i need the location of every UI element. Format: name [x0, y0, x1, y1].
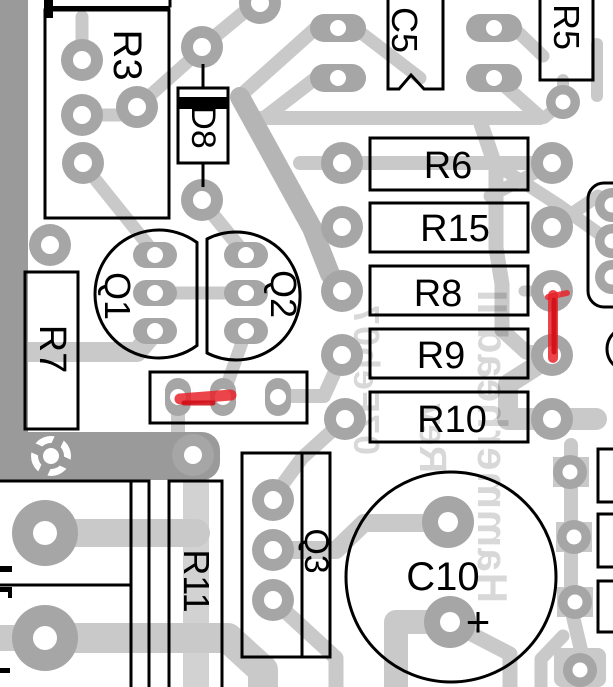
component-outline-edge-box [598, 514, 613, 567]
component-outline-edge-box [598, 449, 613, 502]
pad [224, 242, 268, 268]
pad [324, 398, 366, 440]
label-r5: R5 [546, 4, 587, 50]
label-r10: R10 [417, 399, 487, 441]
label-r6: R6 [424, 145, 473, 187]
pad [29, 224, 71, 266]
pad [133, 280, 177, 306]
pad [310, 64, 366, 92]
pcb-svg: Hammerhead II Rev 07Feb07 [0, 0, 613, 687]
pad [239, 0, 281, 24]
pad [422, 496, 474, 548]
pad [466, 64, 522, 92]
red-mark-vertical-cap [548, 293, 567, 297]
pad [265, 378, 291, 416]
label-r11: R11 [176, 549, 217, 612]
label-c10: C10 [406, 555, 479, 599]
pad [252, 579, 294, 621]
red-mark-horizontal [180, 395, 231, 399]
pad [531, 142, 573, 184]
pcb-layout-diagram: Hammerhead II Rev 07Feb07 [0, 0, 613, 687]
pad [531, 398, 573, 440]
pad [321, 334, 363, 376]
pad [557, 520, 591, 554]
pad [595, 260, 613, 294]
label-r15: R15 [420, 208, 490, 250]
label-r9: R9 [417, 335, 466, 377]
pad [61, 39, 103, 81]
component-outline-right-arc [607, 327, 613, 371]
label-c5: C5 [384, 7, 425, 53]
pad [546, 85, 580, 119]
pad [181, 26, 223, 68]
label-q1: Q1 [97, 272, 138, 320]
label-r3: R3 [105, 29, 149, 80]
cut-label-fragment [0, 566, 12, 673]
pad [116, 86, 158, 128]
pad [553, 455, 587, 489]
label-q3: Q3 [297, 528, 335, 573]
pad [133, 318, 177, 344]
pad [172, 434, 214, 476]
pad [310, 14, 366, 42]
pad [563, 653, 597, 687]
label-d8: D8 [184, 105, 222, 148]
pad [321, 270, 363, 312]
pad [12, 500, 78, 566]
cut-component-top [53, 0, 170, 8]
label-r7: R7 [31, 325, 73, 374]
pad [224, 318, 268, 344]
label-polarity-plus: + [466, 598, 491, 645]
pad [252, 529, 294, 571]
pad [531, 206, 573, 248]
pad [466, 14, 522, 42]
label-q2: Q2 [263, 270, 304, 318]
pad [61, 94, 103, 136]
pad [321, 142, 363, 184]
pad [133, 242, 177, 268]
pad [224, 280, 268, 306]
pad [12, 605, 78, 671]
pad [252, 479, 294, 521]
pad [321, 206, 363, 248]
pad [558, 585, 592, 619]
label-r8: R8 [414, 273, 463, 315]
pad [62, 142, 104, 184]
component-outline-edge-box [598, 581, 613, 632]
component-outline-wire [131, 481, 149, 687]
